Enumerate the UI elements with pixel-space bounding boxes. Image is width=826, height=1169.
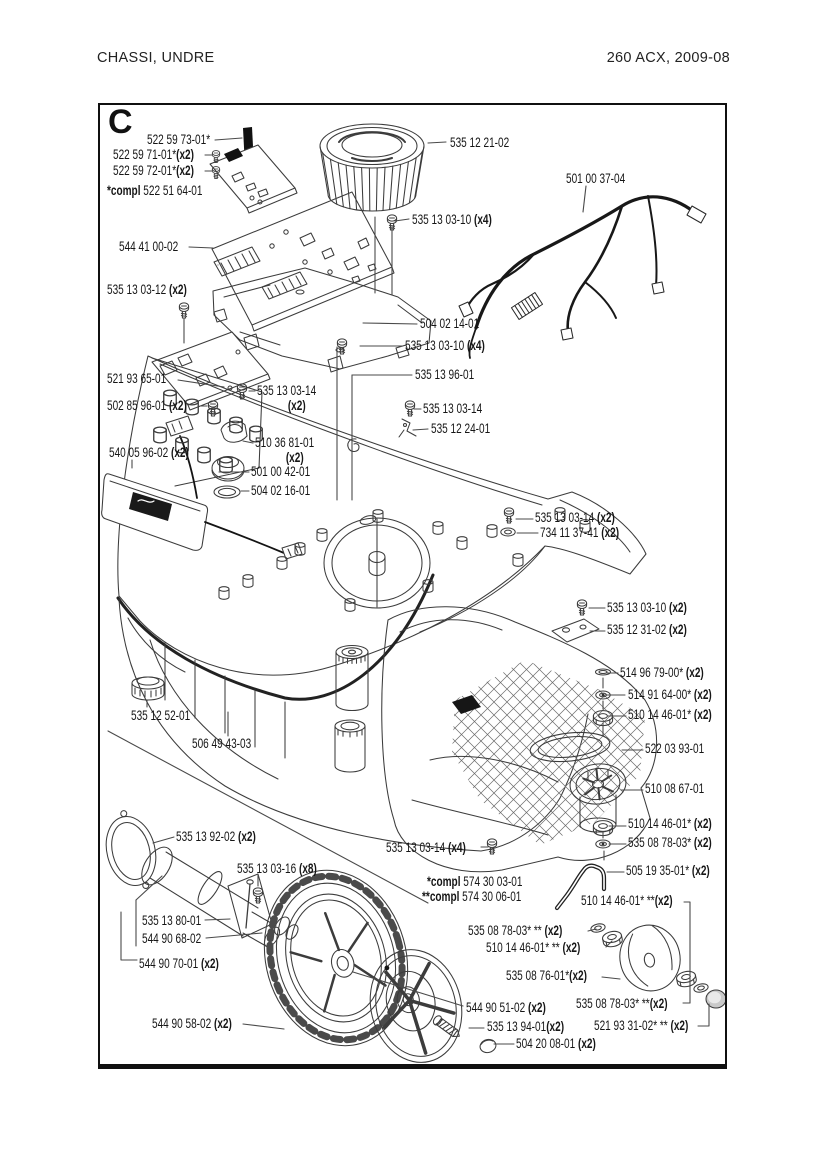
leader-line bbox=[215, 138, 242, 140]
wheel-hub bbox=[359, 940, 474, 1072]
leader-line bbox=[363, 323, 417, 324]
wire-harness bbox=[459, 196, 706, 358]
leader-line bbox=[243, 1024, 284, 1029]
deck-posts bbox=[154, 390, 590, 611]
leader-line bbox=[698, 1004, 709, 1026]
pcb-sensor bbox=[152, 332, 270, 410]
leader-line bbox=[684, 902, 690, 1003]
gasket bbox=[98, 805, 164, 895]
pcb-main bbox=[212, 192, 394, 331]
leader-line bbox=[108, 731, 428, 903]
battery bbox=[102, 416, 302, 559]
leader-line bbox=[583, 186, 586, 212]
leader-line bbox=[121, 912, 137, 960]
leader-line bbox=[153, 837, 174, 843]
leader-line bbox=[189, 247, 213, 248]
leader-line bbox=[413, 429, 428, 430]
leader-line bbox=[205, 919, 230, 920]
rubber-cap bbox=[132, 677, 164, 700]
charging-contact bbox=[212, 419, 599, 642]
exploded-diagram bbox=[0, 0, 826, 1169]
leader-line bbox=[206, 933, 262, 938]
pcb-display bbox=[210, 145, 297, 213]
rear-caster bbox=[557, 866, 726, 1008]
leader-line bbox=[602, 977, 620, 979]
leader-line bbox=[428, 142, 446, 143]
fan-drum bbox=[320, 124, 424, 211]
drive-motor bbox=[135, 842, 300, 949]
